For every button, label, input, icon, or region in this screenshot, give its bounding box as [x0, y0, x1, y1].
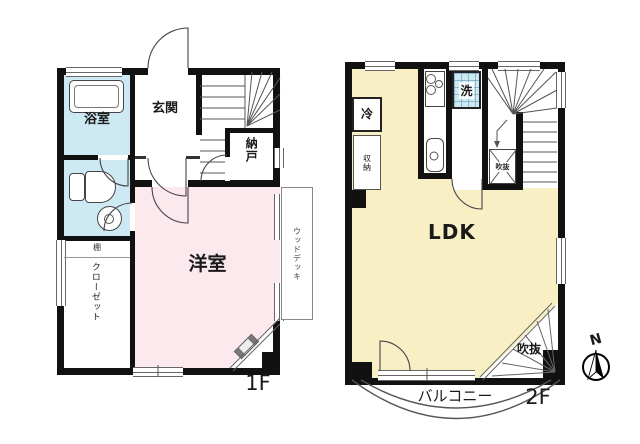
storage-label: 収納	[362, 154, 373, 172]
toilet-tank	[69, 173, 85, 201]
ldk-label: LDK	[428, 221, 476, 243]
f2-east-window-stairs	[556, 72, 566, 108]
storeroom-label: 納戸	[244, 137, 257, 187]
wall-kitchen-bottom	[418, 173, 452, 179]
wall-washroom-stairs	[482, 69, 488, 190]
stair-void-box: 吹抜	[489, 149, 516, 184]
stair-void-label: 吹抜	[496, 162, 510, 172]
bath-door-gap	[98, 155, 128, 160]
wall-stairs-bottom	[482, 184, 523, 190]
toilet-bowl	[85, 171, 116, 203]
f2-north-window-mid	[449, 61, 479, 71]
kitchen-sink	[426, 138, 444, 172]
hall-door-gap	[146, 156, 186, 159]
wood-deck: ウッドデッキ	[281, 187, 313, 320]
compass-circle	[582, 353, 610, 381]
wall-kitchen	[418, 69, 424, 179]
f2-east-window-ldk	[556, 238, 566, 284]
refrigerator-box: 冷	[352, 97, 382, 132]
wall-entrance-stairs	[196, 75, 202, 135]
wall-toilet-closet	[64, 236, 130, 241]
wall-stairs-center	[516, 112, 523, 188]
floor1-label: 1F	[236, 372, 280, 395]
washbasin	[97, 206, 122, 231]
storeroom-window	[274, 148, 284, 168]
balcony-label: バルコニー	[400, 388, 510, 405]
storeroom-door-gap	[225, 157, 230, 181]
storage-box: 収納	[353, 135, 381, 190]
f2-north-window-right	[498, 61, 540, 71]
balcony-sliding-window	[378, 370, 475, 381]
floor2-label: 2F	[516, 386, 560, 409]
f2-north-window-left	[365, 61, 395, 71]
washer-box: 洗	[452, 71, 481, 109]
compass-north-label: N	[580, 330, 611, 352]
toilet-door-gap	[130, 203, 135, 231]
closet-label: クローゼット	[89, 262, 99, 366]
closet-shelf-line	[64, 257, 130, 258]
bathroom-label: 浴室	[64, 113, 130, 127]
entrance-label: 玄関	[136, 102, 194, 116]
western-room-door-gap	[152, 180, 188, 187]
wall-storeroom-top	[225, 128, 280, 133]
stove	[425, 71, 445, 107]
bathtub-inner	[74, 85, 119, 108]
washer-label: 洗	[459, 82, 473, 99]
western-room-label: 洋室	[160, 254, 255, 275]
wood-deck-label: ウッドデッキ	[292, 227, 303, 281]
bathtub	[69, 80, 124, 113]
refrigerator-label: 冷	[361, 108, 373, 121]
wall-step-bottom-left	[352, 362, 372, 378]
entrance-door-gap	[148, 68, 188, 75]
corner-void-label: 吹抜	[505, 343, 553, 356]
shelf-label: 棚	[64, 244, 130, 253]
entrance-door-arc	[148, 28, 188, 68]
floor-plan: ウッドデッキ 冷 収納 洗 吹抜	[0, 0, 640, 444]
western-room-south-window	[133, 367, 183, 377]
wall-stub-left	[352, 190, 366, 208]
bathroom-window	[66, 67, 122, 77]
